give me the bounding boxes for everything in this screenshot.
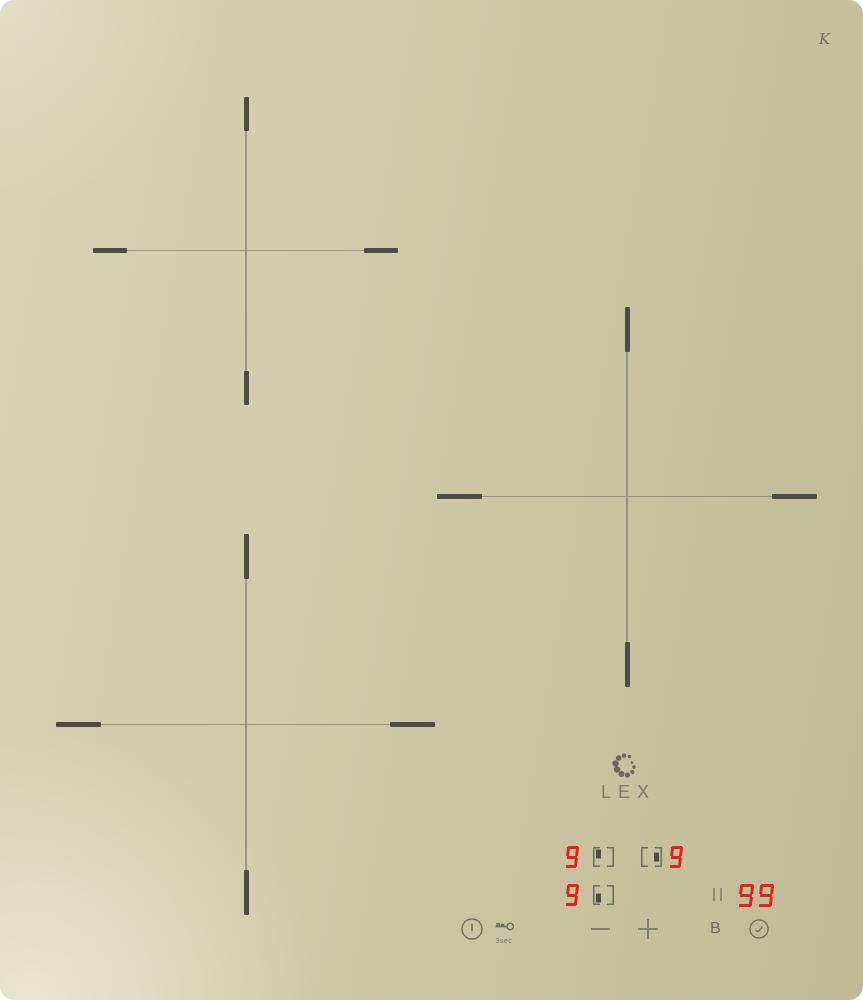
child-lock-button[interactable]: 3sec (489, 919, 519, 945)
glass-maker-letter: K (819, 30, 829, 48)
burner-cross-right (437, 307, 817, 687)
brand-logo: LEX (580, 753, 670, 801)
cross-v-line (626, 307, 628, 687)
cross-tick-top (244, 97, 249, 131)
timer-display (739, 884, 773, 907)
power-button[interactable] (460, 917, 484, 946)
minus-icon (591, 928, 610, 930)
cross-tick-right (364, 248, 398, 253)
cross-tick-bottom (244, 371, 249, 405)
zone-position-icon-right (641, 847, 662, 867)
cross-tick-bottom (244, 870, 249, 915)
zone-top-left-power-display (566, 846, 578, 868)
brand-wordmark: LEX (580, 783, 670, 801)
booster-button[interactable]: B (710, 918, 721, 940)
burner-cross-top-left (93, 97, 398, 405)
key-icon (494, 921, 515, 932)
cross-tick-left (56, 722, 101, 727)
zone-position-icon-top-left (593, 847, 614, 867)
power-decrease-button[interactable] (591, 919, 610, 930)
cross-v-line (245, 97, 247, 405)
cooktop-glass-panel: K (0, 0, 863, 1000)
cross-tick-top (625, 307, 630, 352)
power-increase-button[interactable] (638, 919, 658, 939)
cross-tick-left (93, 248, 127, 253)
brand-swirl-icon (612, 753, 638, 779)
timer-zone-indicator (713, 888, 722, 901)
burner-cross-bottom-left (56, 534, 435, 915)
zone-position-icon-bottom-left (593, 885, 614, 905)
zone-bottom-left-power-display (566, 884, 578, 906)
power-icon (460, 917, 484, 941)
cross-tick-left (437, 494, 482, 499)
cross-tick-top (244, 534, 249, 579)
child-lock-hold-label: 3sec (489, 938, 519, 945)
cross-v-line (245, 534, 247, 915)
clock-icon (748, 918, 770, 940)
cross-tick-right (390, 722, 435, 727)
cross-tick-bottom (625, 642, 630, 687)
glass-maker-mark: K (813, 29, 835, 49)
zone-right-power-display (670, 846, 682, 868)
cross-tick-right (772, 494, 817, 499)
plus-icon (638, 919, 658, 939)
timer-button[interactable] (748, 918, 770, 945)
